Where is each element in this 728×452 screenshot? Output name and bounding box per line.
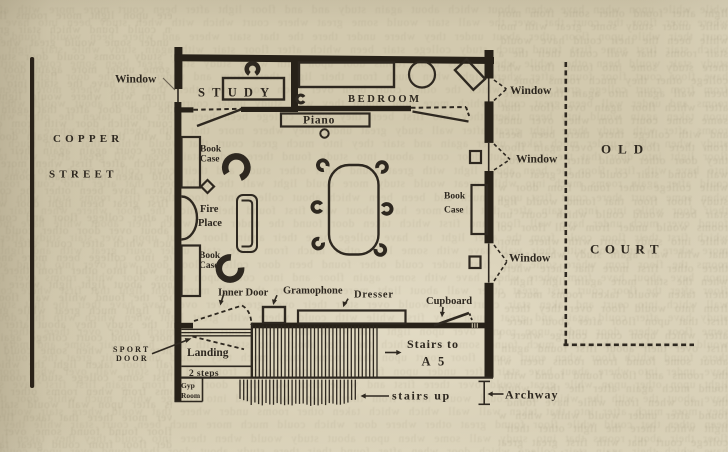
svg-text:Cupboard: Cupboard	[426, 296, 472, 307]
svg-text:STREET: STREET	[49, 169, 118, 181]
svg-text:Book: Book	[444, 192, 466, 202]
svg-text:OLD: OLD	[601, 142, 650, 157]
svg-text:Window: Window	[510, 85, 552, 97]
svg-text:Stairs to: Stairs to	[407, 337, 459, 351]
svg-text:Gramophone: Gramophone	[283, 286, 343, 297]
svg-text:COURT: COURT	[590, 242, 664, 257]
svg-text:A 5: A 5	[422, 355, 447, 369]
svg-text:Fire: Fire	[200, 204, 219, 215]
svg-text:Book: Book	[200, 145, 222, 155]
svg-text:DOOR: DOOR	[116, 354, 149, 363]
svg-text:SPORT: SPORT	[113, 345, 150, 354]
svg-text:Book: Book	[199, 251, 221, 261]
svg-text:Window: Window	[509, 253, 551, 265]
svg-text:Gyp: Gyp	[181, 381, 195, 390]
svg-text:Place: Place	[198, 218, 222, 229]
svg-text:Piano: Piano	[303, 115, 335, 127]
svg-text:COPPER: COPPER	[53, 133, 123, 145]
svg-text:Landing: Landing	[187, 347, 229, 359]
svg-text:Case: Case	[200, 155, 220, 165]
svg-text:Inner Door: Inner Door	[218, 288, 269, 299]
svg-text:BEDROOM: BEDROOM	[348, 94, 422, 105]
svg-text:Window: Window	[115, 74, 157, 86]
svg-text:Dresser: Dresser	[354, 290, 394, 301]
svg-text:2 steps: 2 steps	[189, 369, 219, 379]
svg-text:Archway: Archway	[505, 388, 558, 402]
svg-text:Room: Room	[181, 391, 201, 400]
svg-text:STUDY: STUDY	[198, 86, 276, 100]
svg-text:Case: Case	[444, 206, 464, 216]
svg-text:stairs up: stairs up	[392, 389, 451, 403]
svg-text:Case: Case	[199, 261, 219, 271]
svg-text:Window: Window	[516, 154, 558, 166]
